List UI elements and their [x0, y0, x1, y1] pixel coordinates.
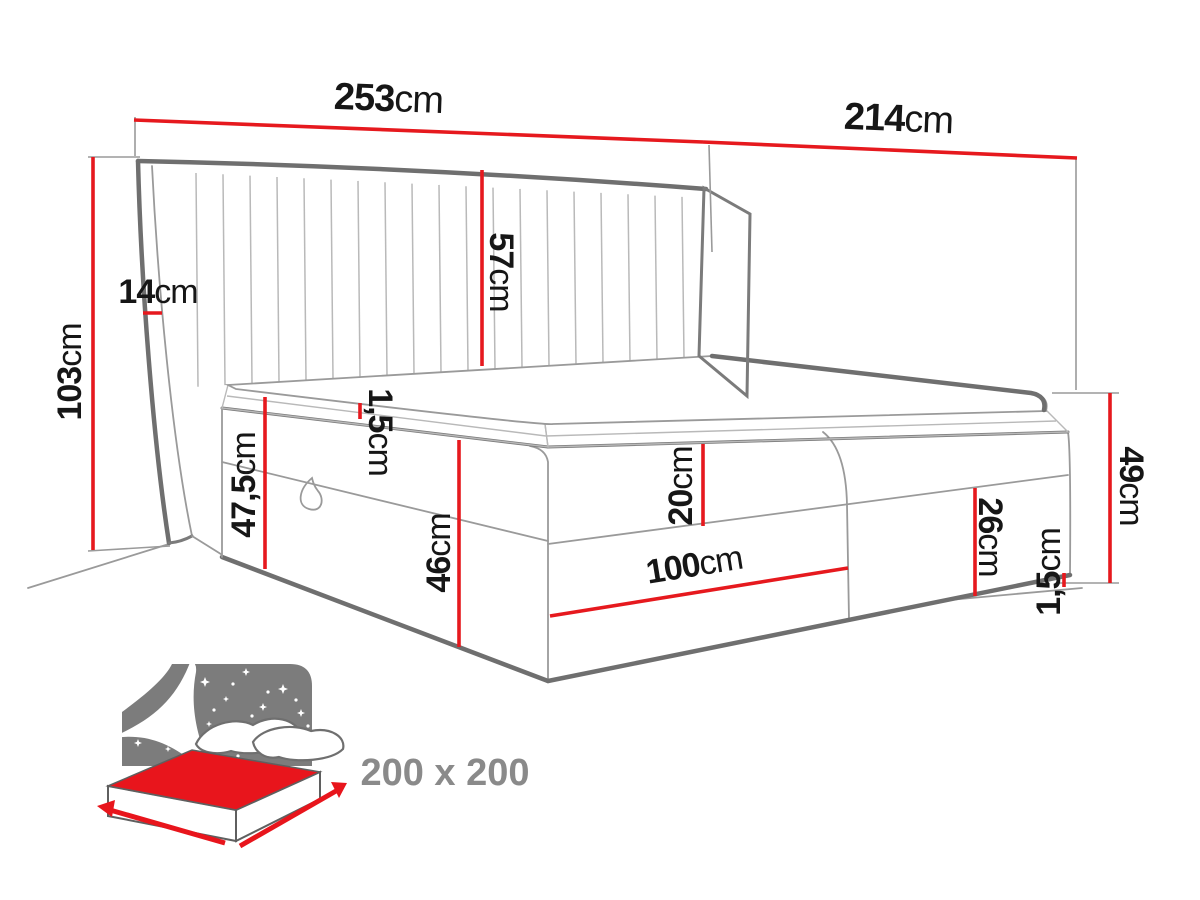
- star-dot-icon: [178, 688, 181, 691]
- label-wing-thickness: 14cm: [118, 273, 197, 311]
- star-dot-icon: [212, 708, 215, 711]
- headboard-left-wing-bottom: [169, 536, 192, 543]
- pillow-right-icon: [253, 727, 343, 760]
- star-dot-icon: [306, 724, 309, 727]
- star-dot-icon: [250, 714, 253, 717]
- star-dot-icon: [148, 734, 151, 737]
- label-headboard-panel-height: 57cm: [482, 232, 520, 311]
- extension-line: [709, 145, 712, 252]
- label-floor-gap: 1,5cm: [1030, 528, 1068, 616]
- dim-line-253: [134, 120, 703, 142]
- label-bed-depth: 214cm: [843, 96, 954, 143]
- extension-line: [88, 546, 170, 551]
- label-lower-box-height: 26cm: [971, 497, 1009, 576]
- bed-size-badge: 200 x 200: [97, 660, 530, 846]
- badge-size-label: 200 x 200: [360, 752, 529, 794]
- star-dot-icon: [180, 728, 183, 731]
- star-dot-icon: [231, 682, 234, 685]
- wing-to-base-line: [192, 536, 224, 556]
- bed-drawing: [28, 161, 1082, 681]
- label-headboard-height: 103cm: [51, 323, 89, 420]
- bed-dimension-diagram: 253cm 214cm 103cm 14cm 57cm 1,5cm 47,5cm…: [0, 0, 1200, 900]
- label-mattress-lip: 1,5cm: [361, 388, 399, 476]
- star-dot-icon: [266, 690, 269, 693]
- label-left-total-height: 47,5cm: [225, 432, 263, 538]
- diagram-canvas: 253cm 214cm 103cm 14cm 57cm 1,5cm 47,5cm…: [0, 0, 1200, 900]
- label-upper-box-height: 20cm: [662, 446, 700, 525]
- dim-line-214: [703, 142, 1077, 158]
- label-side-total-height: 49cm: [1112, 446, 1150, 525]
- label-headboard-width: 253cm: [333, 76, 444, 122]
- star-dot-icon: [294, 698, 297, 701]
- label-base-height: 46cm: [420, 513, 458, 592]
- badge-width-arrowhead-icon: [97, 800, 115, 817]
